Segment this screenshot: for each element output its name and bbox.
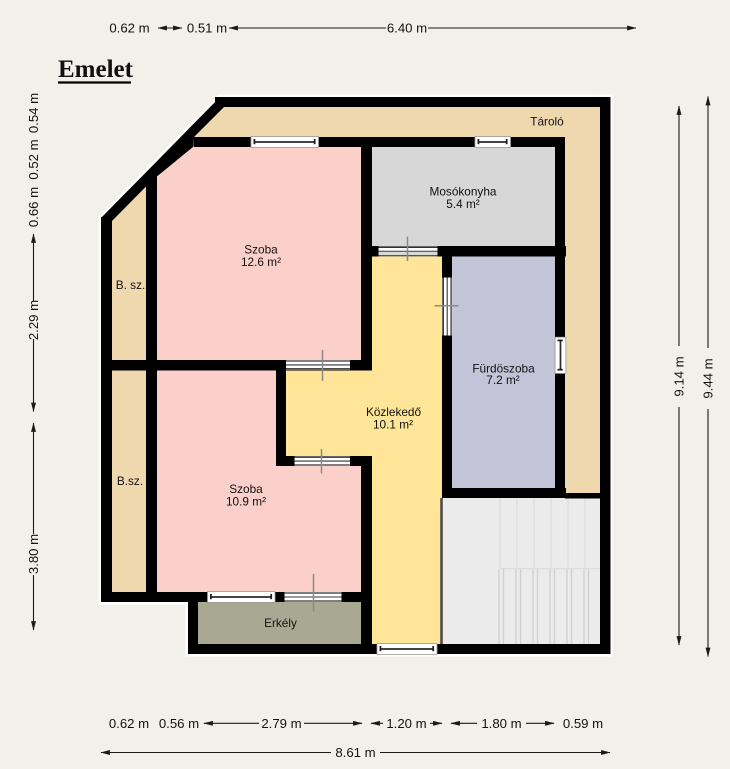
svg-text:0.66 m: 0.66 m <box>26 187 41 227</box>
svg-text:B.sz.: B.sz. <box>117 474 143 488</box>
svg-text:8.61 m: 8.61 m <box>335 745 375 760</box>
svg-text:10.9 m²: 10.9 m² <box>226 495 266 509</box>
svg-text:9.44 m: 9.44 m <box>701 358 716 398</box>
svg-text:2.79 m: 2.79 m <box>261 716 301 731</box>
svg-text:0.62 m: 0.62 m <box>109 716 149 731</box>
svg-text:0.56 m: 0.56 m <box>159 716 199 731</box>
svg-text:1.80 m: 1.80 m <box>481 716 521 731</box>
svg-text:0.59 m: 0.59 m <box>563 716 603 731</box>
svg-text:Tároló: Tároló <box>530 115 564 129</box>
svg-text:0.54 m: 0.54 m <box>26 93 41 133</box>
svg-text:0.52 m: 0.52 m <box>26 139 41 179</box>
svg-text:5.4 m²: 5.4 m² <box>446 197 480 211</box>
svg-text:Erkély: Erkély <box>264 616 297 630</box>
svg-text:9.14 m: 9.14 m <box>672 356 687 396</box>
svg-text:6.40 m: 6.40 m <box>387 21 427 36</box>
svg-text:2.29 m: 2.29 m <box>26 300 41 340</box>
svg-text:12.6 m²: 12.6 m² <box>241 255 281 269</box>
svg-text:Emelet: Emelet <box>58 56 134 83</box>
svg-text:B. sz.: B. sz. <box>116 278 146 292</box>
svg-text:0.62 m: 0.62 m <box>109 21 149 36</box>
svg-text:7.2 m²: 7.2 m² <box>486 373 520 387</box>
svg-text:10.1 m²: 10.1 m² <box>373 418 413 432</box>
svg-text:3.80 m: 3.80 m <box>26 534 41 574</box>
svg-text:0.51 m: 0.51 m <box>187 21 227 36</box>
svg-text:1.20 m: 1.20 m <box>386 716 426 731</box>
